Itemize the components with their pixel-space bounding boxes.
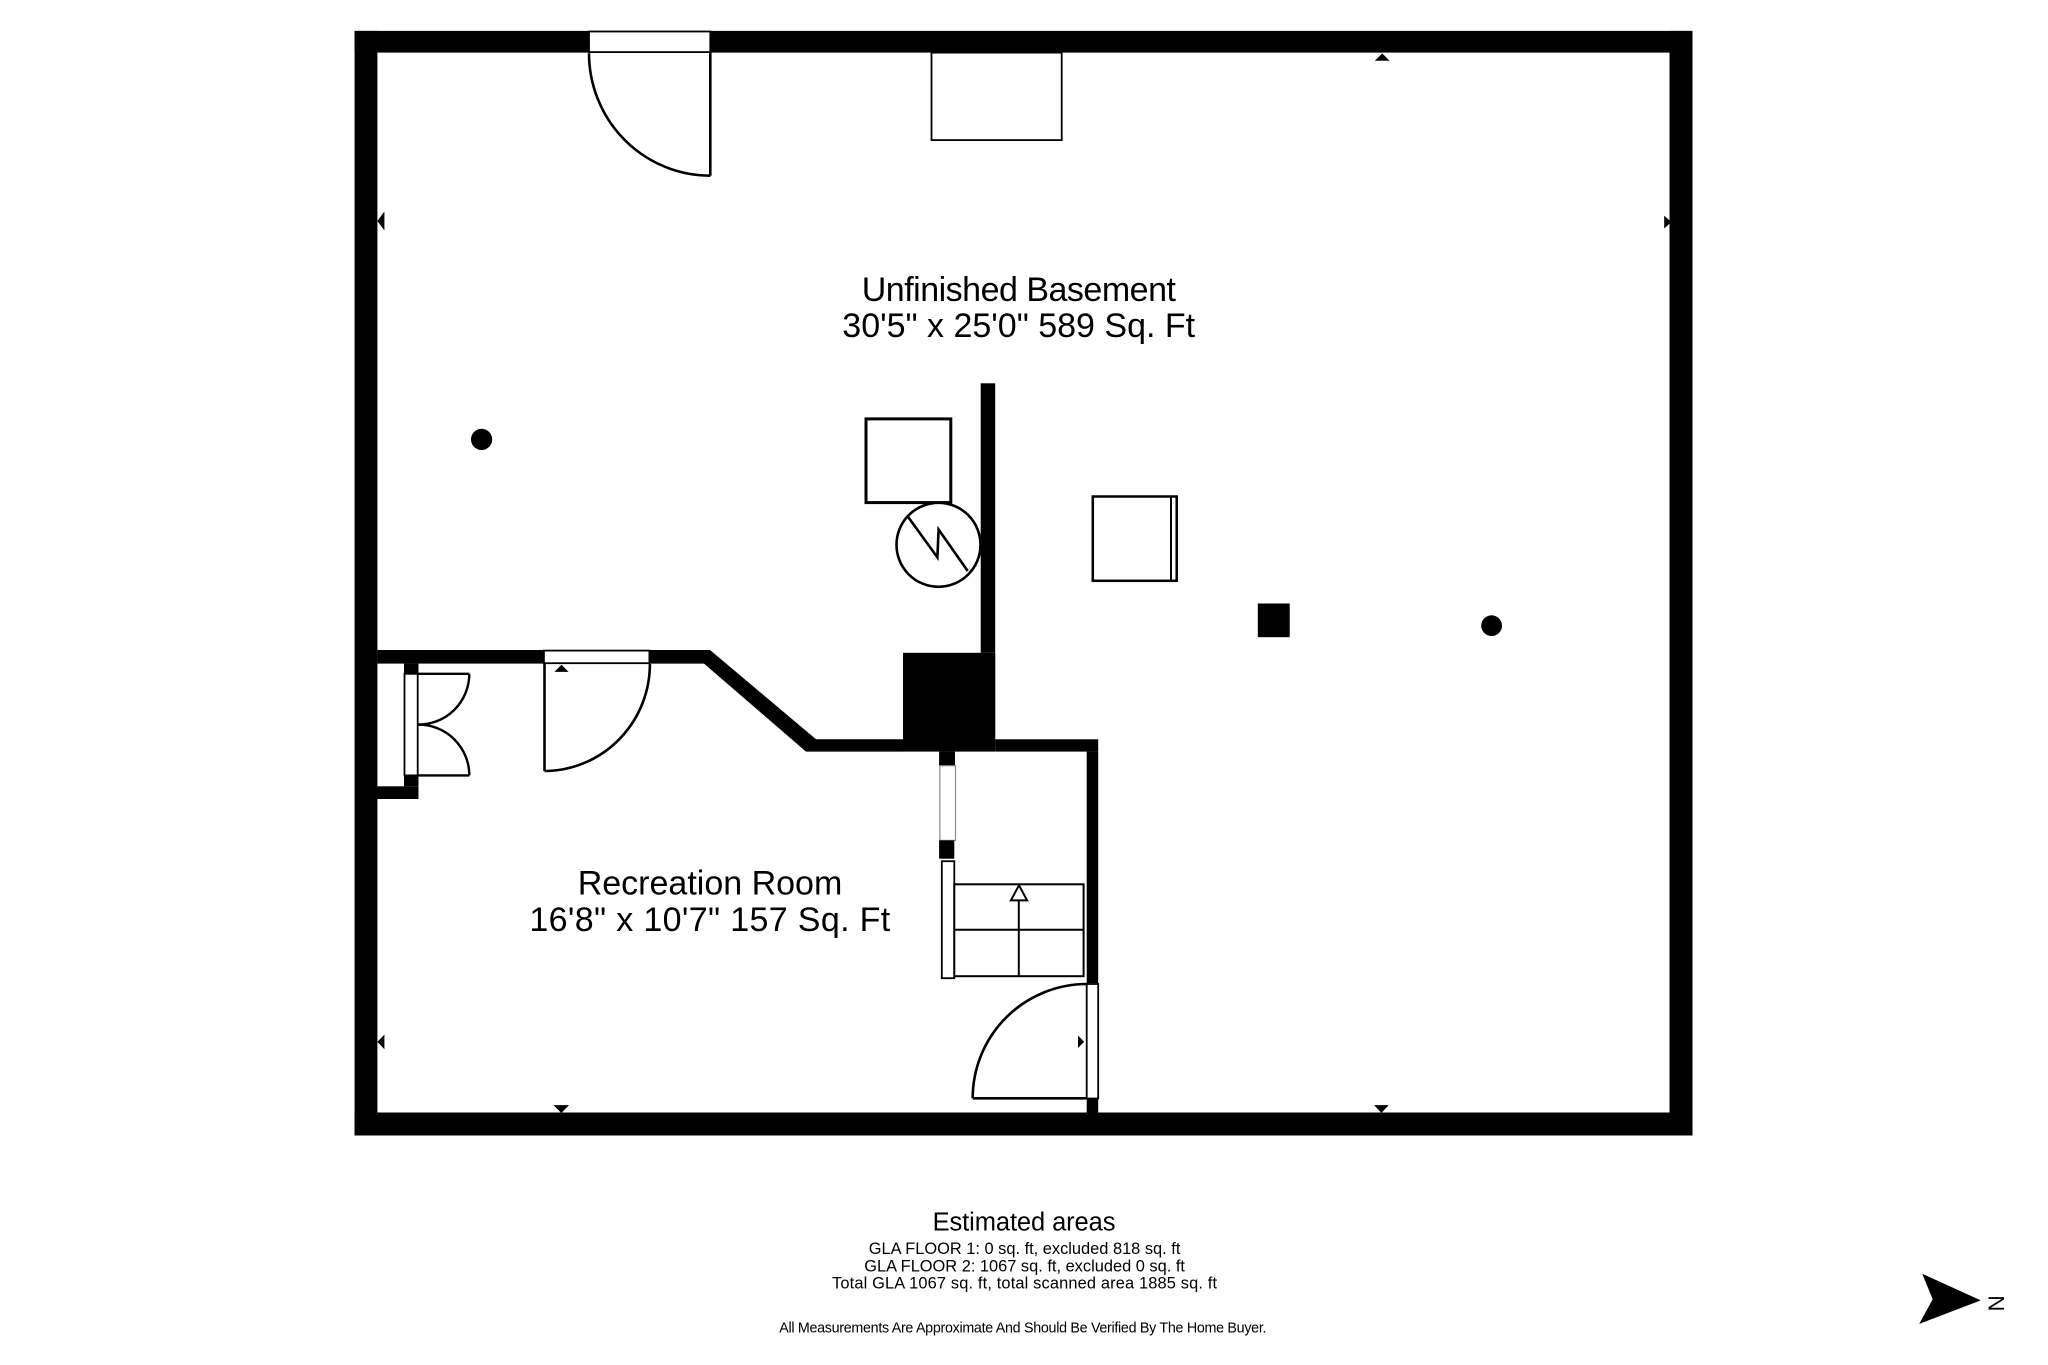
svg-text:Estimated areas: Estimated areas (933, 1209, 1116, 1237)
svg-text:GLA FLOOR 2: 1067 sq. ft, excl: GLA FLOOR 2: 1067 sq. ft, excluded 0 sq.… (864, 1257, 1185, 1275)
svg-text:Total GLA 1067 sq. ft, total s: Total GLA 1067 sq. ft, total scanned are… (832, 1274, 1217, 1292)
svg-text:All Measurements Are Approxima: All Measurements Are Approximate And Sho… (779, 1320, 1266, 1336)
svg-text:30'5" x 25'0" 589 Sq. Ft: 30'5" x 25'0" 589 Sq. Ft (842, 307, 1195, 345)
svg-text:Unfinished Basement: Unfinished Basement (862, 271, 1177, 309)
svg-text:N: N (1983, 1295, 2008, 1311)
svg-text:Recreation Room: Recreation Room (578, 865, 843, 903)
svg-text:16'8" x 10'7" 157 Sq. Ft: 16'8" x 10'7" 157 Sq. Ft (529, 901, 890, 939)
svg-text:GLA FLOOR 1: 0 sq. ft, exclude: GLA FLOOR 1: 0 sq. ft, excluded 818 sq. … (869, 1240, 1181, 1258)
